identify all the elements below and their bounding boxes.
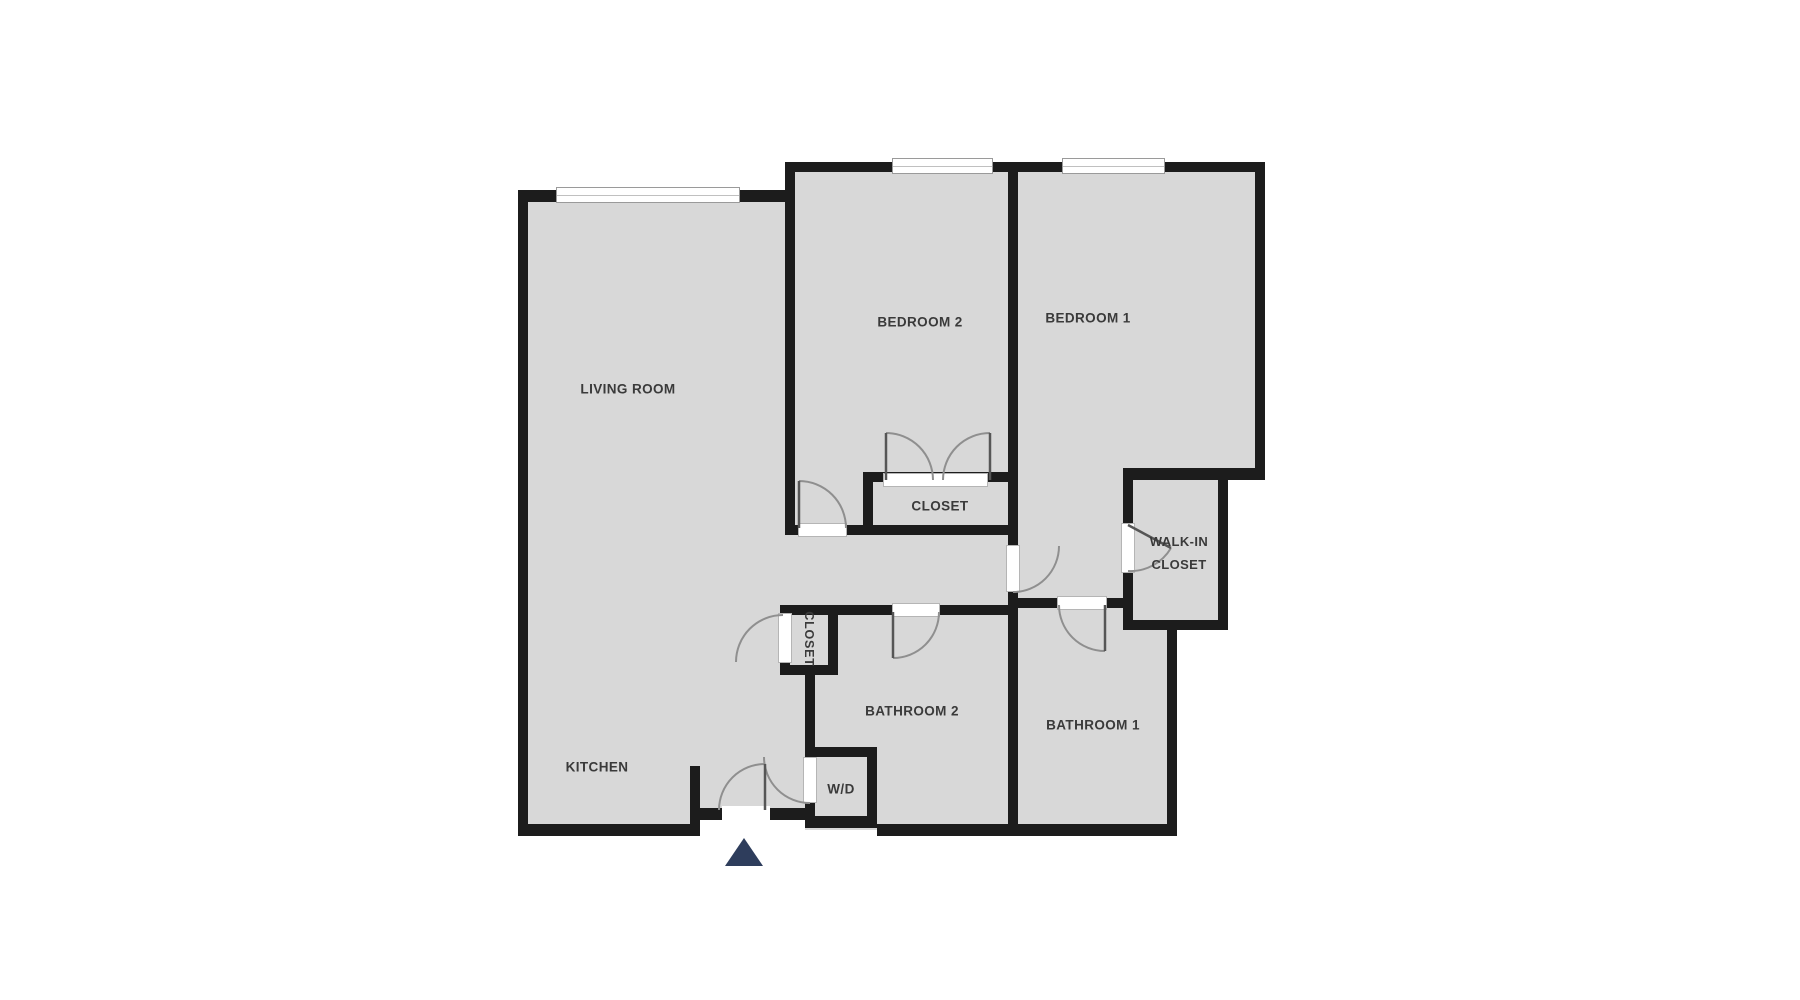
room-label-hall-closet: CLOSET <box>802 611 816 667</box>
wall <box>518 190 528 836</box>
room-label-bedroom-2-closet: CLOSET <box>911 499 968 514</box>
room-label-bedroom-2: BEDROOM 2 <box>877 315 962 330</box>
door-opening <box>798 523 847 537</box>
wall <box>1255 162 1265 478</box>
wall <box>785 162 795 535</box>
floor-area <box>1013 472 1133 608</box>
wall <box>877 824 1177 836</box>
window <box>892 158 993 174</box>
room-label-bathroom-2: BATHROOM 2 <box>865 704 959 719</box>
room-label-laundry: W/D <box>827 782 854 797</box>
wall <box>690 766 700 824</box>
room-label-living-room: LIVING ROOM <box>580 382 675 397</box>
room-label-bedroom-1: BEDROOM 1 <box>1045 311 1130 326</box>
wall <box>518 824 700 836</box>
exterior-cutout <box>700 820 805 838</box>
door-opening <box>803 757 817 803</box>
entry-arrow <box>725 838 763 866</box>
door-opening <box>883 473 988 487</box>
wall <box>785 162 1265 172</box>
door-opening <box>778 613 792 663</box>
floor-plan: LIVING ROOM KITCHEN BEDROOM 2 BEDROOM 1 … <box>0 0 1800 1000</box>
floor-area <box>795 172 1013 830</box>
wall <box>1008 162 1018 545</box>
wall <box>1008 592 1018 836</box>
wall <box>1123 468 1265 480</box>
door-opening <box>1006 545 1020 592</box>
window <box>556 187 740 203</box>
room-label-walk-in-closet: WALK-IN CLOSET <box>1131 530 1227 576</box>
wall <box>805 675 815 747</box>
room-label-bathroom-1: BATHROOM 1 <box>1046 718 1140 733</box>
wall <box>867 747 877 828</box>
floor-area <box>526 197 800 830</box>
room-label-kitchen: KITCHEN <box>566 760 629 775</box>
door-opening <box>1057 596 1107 610</box>
door-opening <box>892 603 940 617</box>
floor-plan-page: LIVING ROOM KITCHEN BEDROOM 2 BEDROOM 1 … <box>0 0 1800 1000</box>
wall <box>1167 620 1177 836</box>
window <box>1062 158 1165 174</box>
